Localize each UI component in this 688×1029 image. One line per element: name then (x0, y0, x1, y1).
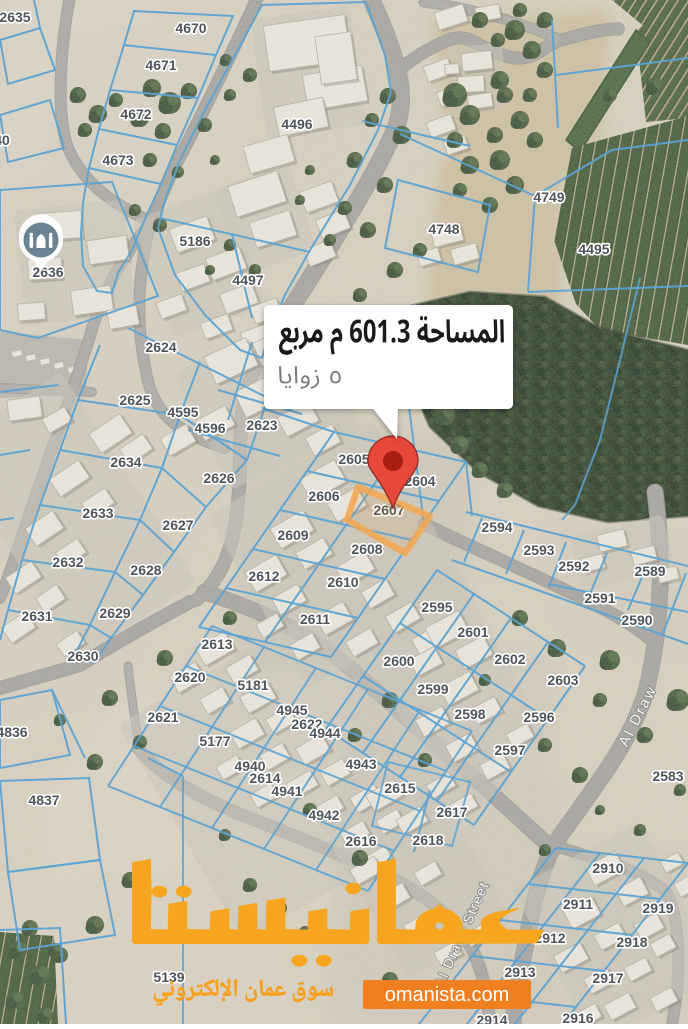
svg-text:4671: 4671 (145, 57, 176, 73)
svg-text:2616: 2616 (345, 833, 376, 849)
svg-text:2626: 2626 (203, 470, 234, 486)
svg-text:2589: 2589 (634, 563, 665, 579)
svg-text:5139: 5139 (153, 969, 184, 985)
svg-text:2635: 2635 (0, 9, 31, 25)
svg-text:4748: 4748 (428, 221, 459, 237)
svg-text:4944: 4944 (309, 725, 340, 741)
svg-text:4497: 4497 (232, 272, 263, 288)
svg-text:4943: 4943 (345, 756, 376, 772)
svg-text:2911: 2911 (563, 896, 594, 912)
svg-text:2910: 2910 (592, 860, 623, 876)
svg-text:2596: 2596 (523, 709, 554, 725)
svg-text:4596: 4596 (194, 420, 225, 436)
svg-text:2918: 2918 (616, 934, 647, 950)
svg-text:2630: 2630 (67, 648, 98, 664)
svg-text:2611: 2611 (300, 611, 331, 627)
svg-text:2601: 2601 (457, 624, 488, 640)
svg-text:2610: 2610 (327, 574, 358, 590)
svg-text:omanista.com: omanista.com (385, 984, 510, 1006)
svg-text:2600: 2600 (383, 653, 414, 669)
svg-text:2606: 2606 (308, 488, 339, 504)
svg-text:4496: 4496 (281, 116, 312, 132)
svg-text:4749: 4749 (533, 189, 564, 205)
svg-text:2605: 2605 (338, 451, 369, 467)
svg-text:4942: 4942 (308, 807, 339, 823)
svg-text:2583: 2583 (652, 768, 683, 784)
svg-text:2624: 2624 (145, 339, 176, 355)
svg-text:2623: 2623 (246, 417, 277, 433)
svg-text:2631: 2631 (21, 608, 52, 624)
svg-text:2628: 2628 (130, 562, 161, 578)
svg-text:2618: 2618 (412, 832, 443, 848)
svg-text:2913: 2913 (504, 964, 535, 980)
svg-text:4673: 4673 (102, 152, 133, 168)
svg-text:4495: 4495 (578, 241, 609, 257)
svg-text:2595: 2595 (421, 599, 452, 615)
svg-text:5181: 5181 (237, 677, 268, 693)
svg-text:2627: 2627 (162, 517, 193, 533)
svg-text:2916: 2916 (562, 1010, 593, 1024)
svg-text:2603: 2603 (547, 672, 578, 688)
svg-text:4941: 4941 (271, 783, 302, 799)
svg-text:4836: 4836 (0, 724, 28, 740)
svg-text:2602: 2602 (494, 651, 525, 667)
svg-text:2613: 2613 (201, 636, 232, 652)
svg-text:2917: 2917 (592, 970, 623, 986)
svg-text:2617: 2617 (436, 804, 467, 820)
svg-text:2593: 2593 (523, 542, 554, 558)
svg-text:2598: 2598 (454, 706, 485, 722)
svg-text:2625: 2625 (119, 392, 150, 408)
svg-text:2591: 2591 (584, 590, 615, 606)
svg-text:5186: 5186 (179, 233, 210, 249)
svg-text:2632: 2632 (52, 554, 83, 570)
svg-text:2621: 2621 (147, 709, 178, 725)
svg-text:40: 40 (0, 132, 10, 148)
svg-text:5177: 5177 (199, 733, 230, 749)
svg-text:2615: 2615 (384, 780, 415, 796)
svg-text:2634: 2634 (110, 454, 141, 470)
svg-text:2592: 2592 (558, 558, 589, 574)
svg-text:2629: 2629 (99, 605, 130, 621)
svg-text:2919: 2919 (642, 900, 673, 916)
svg-text:2633: 2633 (82, 505, 113, 521)
svg-text:4672: 4672 (120, 106, 151, 122)
svg-text:2594: 2594 (481, 519, 512, 535)
svg-text:2612: 2612 (248, 568, 279, 584)
svg-text:4595: 4595 (167, 404, 198, 420)
svg-text:2608: 2608 (351, 541, 382, 557)
svg-text:2597: 2597 (494, 742, 525, 758)
svg-text:2609: 2609 (277, 527, 308, 543)
svg-text:2914: 2914 (476, 1012, 507, 1024)
svg-text:2590: 2590 (621, 612, 652, 628)
svg-text:2620: 2620 (174, 669, 205, 685)
svg-text:2636: 2636 (32, 264, 63, 280)
svg-text:4837: 4837 (28, 792, 59, 808)
svg-text:4670: 4670 (175, 20, 206, 36)
svg-text:2599: 2599 (417, 681, 448, 697)
